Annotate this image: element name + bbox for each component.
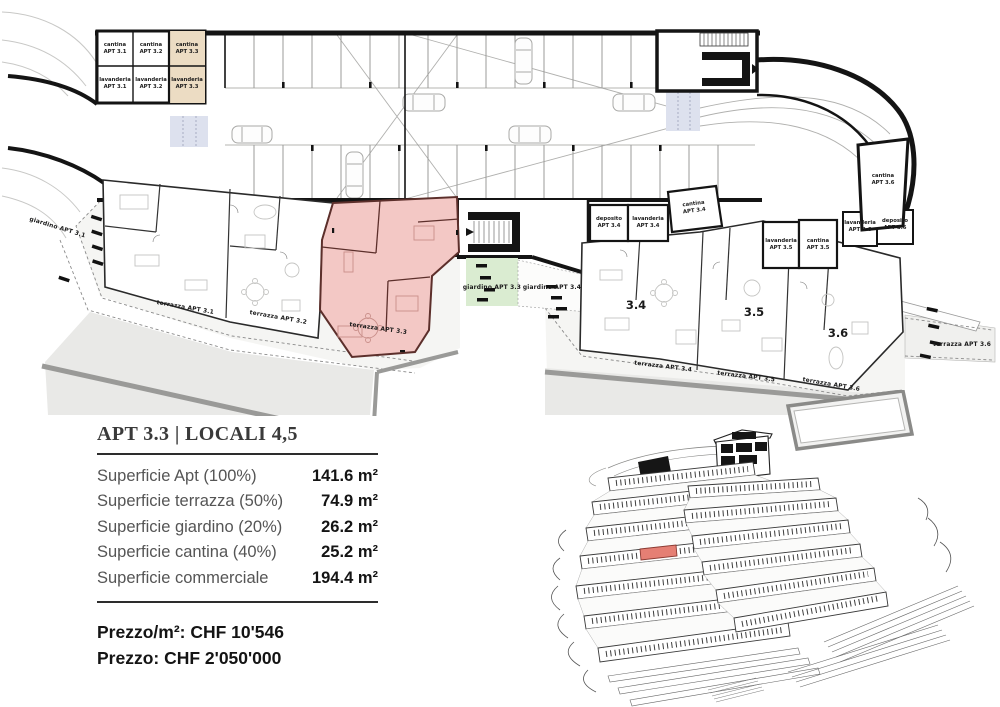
room-apt: APT 3.2 bbox=[140, 49, 163, 55]
surface-value: 74.9 m² bbox=[321, 492, 378, 511]
apartment-number-3-4: 3.4 bbox=[626, 298, 646, 312]
label-terrazza-apt-3-6-east: terrazza APT 3.6 bbox=[933, 342, 991, 348]
model-east-edge bbox=[918, 498, 951, 572]
room-apt: APT 3.1 bbox=[104, 84, 127, 90]
surface-value: 141.6 m² bbox=[312, 467, 378, 486]
room-label: lavanderia bbox=[844, 220, 876, 226]
room-apt: APT 3.4 bbox=[637, 223, 660, 229]
room-label: lavanderia bbox=[171, 77, 203, 83]
brochure-page: cantina APT 3.1 cantina APT 3.2 cantina … bbox=[0, 0, 1000, 707]
apartment-title: APT 3.3 | LOCALI 4,5 bbox=[97, 423, 378, 446]
room-label: cantina bbox=[104, 42, 127, 48]
surface-label: Superficie terrazza (50%) bbox=[97, 492, 283, 511]
label-giardino-apt-3-3: giardino APT 3.3 bbox=[463, 285, 521, 291]
surface-label: Superficie cantina (40%) bbox=[97, 543, 277, 562]
room-apt: APT 3.2 bbox=[140, 84, 163, 90]
building-3d-model bbox=[488, 390, 998, 707]
car bbox=[346, 152, 363, 198]
price-per-m2: Prezzo/m²: CHF 10'546 bbox=[97, 619, 378, 645]
car bbox=[613, 94, 655, 111]
apartments-left bbox=[103, 180, 333, 338]
floor-plan: cantina APT 3.1 cantina APT 3.2 cantina … bbox=[0, 0, 1000, 416]
room-label: deposito bbox=[882, 218, 908, 224]
room-apt: APT 3.5 bbox=[770, 245, 793, 251]
car bbox=[515, 38, 532, 84]
entry-court bbox=[457, 198, 588, 312]
apartment-number-3-6: 3.6 bbox=[828, 326, 848, 340]
stairwell bbox=[657, 31, 759, 91]
room-apt: APT 3.4 bbox=[598, 223, 621, 229]
room-apt: APT 3.6 bbox=[849, 227, 872, 233]
table-row: Superficie terrazza (50%) 74.9 m² bbox=[97, 492, 378, 517]
apartment-number-3-5: 3.5 bbox=[744, 305, 764, 319]
surface-label: Superficie Apt (100%) bbox=[97, 467, 257, 486]
surface-table: Superficie Apt (100%) 141.6 m² Superfici… bbox=[97, 467, 378, 594]
room-label: cantina bbox=[807, 238, 830, 244]
room-label: lavanderia bbox=[135, 77, 167, 83]
room-label: lavanderia bbox=[99, 77, 131, 83]
car bbox=[509, 126, 551, 143]
room-label: lavanderia bbox=[632, 216, 664, 222]
surface-label: Superficie giardino (20%) bbox=[97, 518, 282, 537]
surface-value: 26.2 m² bbox=[321, 518, 378, 537]
car bbox=[403, 94, 445, 111]
surface-value: 194.4 m² bbox=[312, 569, 378, 588]
garden-apt33 bbox=[466, 258, 518, 306]
room-label: cantina bbox=[872, 173, 895, 179]
storage-grid: cantina APT 3.1 cantina APT 3.2 cantina … bbox=[97, 31, 205, 103]
room-apt: APT 3.5 bbox=[807, 245, 830, 251]
table-divider bbox=[97, 601, 378, 603]
model-frame-panel bbox=[788, 391, 912, 449]
table-row: Superficie giardino (20%) 26.2 m² bbox=[97, 518, 378, 543]
label-giardino-apt-3-4: giardino APT 3.4 bbox=[523, 285, 581, 291]
room-apt: APT 3.1 bbox=[104, 49, 127, 55]
room-label: cantina bbox=[140, 42, 163, 48]
room-apt: APT 3.6 bbox=[884, 225, 907, 231]
table-row: Superficie Apt (100%) 141.6 m² bbox=[97, 467, 378, 492]
room-apt: APT 3.3 bbox=[176, 84, 199, 90]
room-label: lavanderia bbox=[765, 238, 797, 244]
car bbox=[232, 126, 272, 143]
title-divider bbox=[97, 453, 378, 455]
room-apt: APT 3.3 bbox=[176, 49, 199, 55]
table-row: Superficie cantina (40%) 25.2 m² bbox=[97, 543, 378, 568]
apartment-info-panel: APT 3.3 | LOCALI 4,5 Superficie Apt (100… bbox=[97, 423, 378, 671]
room-label: cantina bbox=[176, 42, 199, 48]
surface-label: Superficie commerciale bbox=[97, 569, 268, 588]
access-roads bbox=[2, 12, 96, 238]
room-apt: APT 3.6 bbox=[872, 180, 895, 186]
surface-value: 25.2 m² bbox=[321, 543, 378, 562]
table-row: Superficie commerciale 194.4 m² bbox=[97, 569, 378, 594]
room-label: deposito bbox=[596, 216, 622, 222]
price-total: Prezzo: CHF 2'050'000 bbox=[97, 645, 378, 671]
